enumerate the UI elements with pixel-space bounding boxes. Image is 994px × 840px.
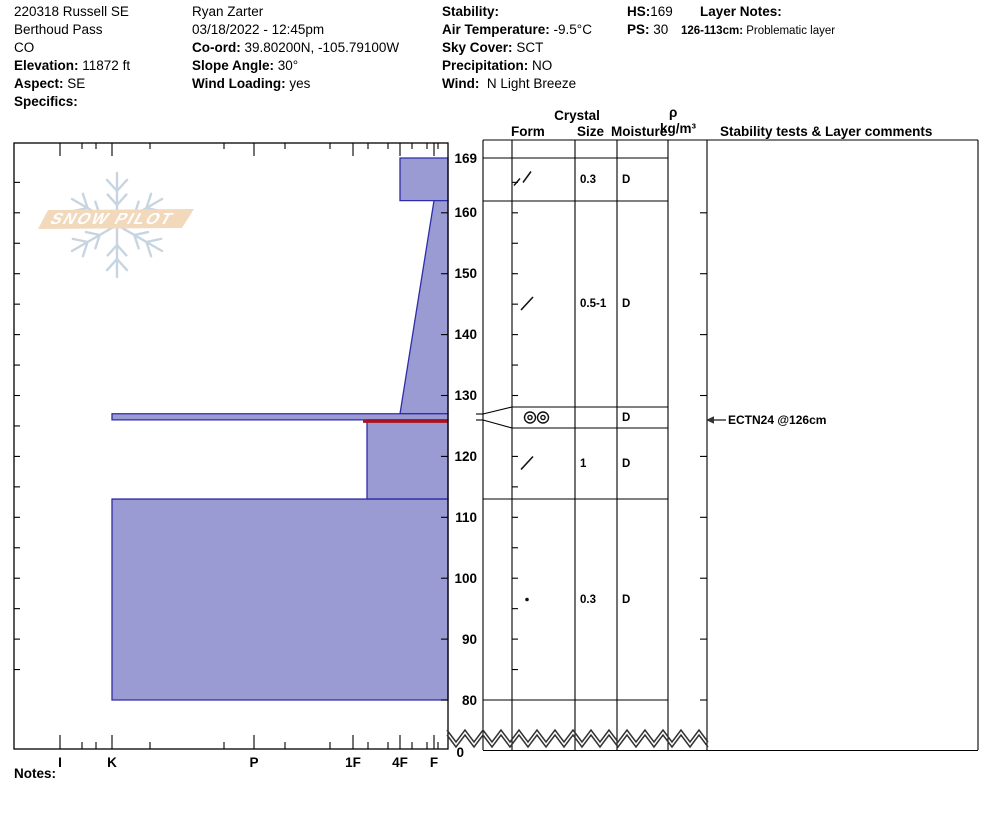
grain-form-rounded-grains-icon — [525, 598, 529, 602]
wind-loading-value: yes — [289, 76, 310, 91]
layer-notes-label: Layer Notes: — [700, 4, 782, 19]
slope-angle-label: Slope Angle: — [192, 58, 274, 73]
moisture-4: D — [622, 593, 630, 607]
moisture-header: Moisture — [611, 124, 667, 139]
grain-form-clustered-rounds-icon — [525, 412, 549, 423]
layer-note-text: Problematic layer — [746, 25, 835, 37]
grain-size-0: 0.3 — [580, 173, 596, 187]
pit-state: CO — [14, 39, 34, 57]
snow-layer-4 — [112, 499, 448, 700]
ps-line: PS: 30 — [627, 21, 668, 39]
layer-note-range: 126-113cm: — [681, 25, 743, 37]
wind-loading-label: Wind Loading: — [192, 76, 286, 91]
hardness-label-F: F — [419, 755, 449, 770]
hs-line: HS:169 — [627, 3, 673, 21]
layer-note-line: 126-113cm: Problematic layer — [681, 24, 835, 38]
hs-label: HS: — [627, 4, 650, 19]
depth-label-160: 160 — [437, 205, 477, 220]
hardness-label-4F: 4F — [385, 755, 415, 770]
depth-label-90: 90 — [437, 632, 477, 647]
depth-label-110: 110 — [437, 510, 477, 525]
depth-label-169: 169 — [437, 151, 477, 166]
elevation-value: 11872 ft — [82, 58, 130, 73]
size-header: Size — [577, 124, 604, 139]
slope-angle-line: Slope Angle: 30° — [192, 57, 298, 75]
observation-datetime: 03/18/2022 - 12:45pm — [192, 21, 324, 39]
stability-line: Stability: — [442, 3, 499, 21]
form-header: Form — [511, 124, 545, 139]
moisture-1: D — [622, 297, 630, 311]
stability-tests-header: Stability tests & Layer comments — [720, 124, 932, 139]
precip-label: Precipitation: — [442, 58, 528, 73]
aspect-label: Aspect: — [14, 76, 64, 91]
moisture-0: D — [622, 173, 630, 187]
elevation-line: Elevation: 11872 ft — [14, 57, 130, 75]
precip-value: NO — [532, 58, 552, 73]
hs-value: 169 — [650, 4, 673, 19]
ps-label: PS: — [627, 22, 650, 37]
pit-area: Berthoud Pass — [14, 21, 103, 39]
grain-form-decomposing-fragments-icon — [521, 457, 533, 470]
coord-label: Co-ord: — [192, 40, 241, 55]
coord-line: Co-ord: 39.80200N, -105.79100W — [192, 39, 399, 57]
specifics-line: Specifics: — [14, 93, 78, 111]
air-temp-value: -9.5°C — [554, 22, 592, 37]
moisture-2: D — [622, 411, 630, 425]
layer-notes-heading: Layer Notes: — [700, 3, 782, 21]
density-units-header: kg/m³ — [660, 121, 696, 136]
aspect-line: Aspect: SE — [14, 75, 85, 93]
grain-form-decomposing-fragments-pair-icon — [514, 172, 531, 186]
air-temp-line: Air Temperature: -9.5°C — [442, 21, 592, 39]
pit-name: 220318 Russell SE — [14, 3, 129, 21]
ps-value: 30 — [653, 22, 668, 37]
hardness-label-I: I — [45, 755, 75, 770]
hardness-label-K: K — [97, 755, 127, 770]
depth-label-120: 120 — [437, 449, 477, 464]
sky-cover-value: SCT — [516, 40, 543, 55]
precip-line: Precipitation: NO — [442, 57, 552, 75]
depth-label-100: 100 — [437, 571, 477, 586]
coord-value: 39.80200N, -105.79100W — [245, 40, 400, 55]
hardness-label-P: P — [239, 755, 269, 770]
wind-label: Wind: — [442, 76, 479, 91]
stability-label: Stability: — [442, 4, 499, 19]
grain-size-4: 0.3 — [580, 593, 596, 607]
grain-size-3: 1 — [580, 457, 586, 471]
observer-name: Ryan Zarter — [192, 3, 263, 21]
density-symbol-header: ρ — [669, 105, 677, 120]
hardness-label-1F: 1F — [338, 755, 368, 770]
snowpilot-logo-wordmark: SNOW PILOT — [36, 210, 188, 229]
depth-label-140: 140 — [437, 327, 477, 342]
wind-loading-line: Wind Loading: yes — [192, 75, 310, 93]
depth-label-150: 150 — [437, 266, 477, 281]
sky-cover-line: Sky Cover: SCT — [442, 39, 543, 57]
slope-angle-value: 30° — [278, 58, 298, 73]
snow-layer-1 — [400, 201, 448, 414]
grain-form-decomposing-fragments-icon — [521, 297, 533, 310]
wind-line: Wind: N Light Breeze — [442, 75, 576, 93]
elevation-label: Elevation: — [14, 58, 79, 73]
crystal-header: Crystal — [550, 108, 604, 123]
aspect-value: SE — [67, 76, 85, 91]
wind-value: N Light Breeze — [487, 76, 576, 91]
sky-cover-label: Sky Cover: — [442, 40, 513, 55]
stability-test-label: ECTN24 @126cm — [728, 413, 826, 427]
air-temp-label: Air Temperature: — [442, 22, 550, 37]
moisture-3: D — [622, 457, 630, 471]
snow-layer-3 — [367, 420, 448, 499]
depth-label-130: 130 — [437, 388, 477, 403]
snowpilot-profile-report: 220318 Russell SE Berthoud Pass CO Eleva… — [0, 0, 994, 840]
snow-layer-2 — [112, 414, 448, 420]
grain-size-1: 0.5-1 — [580, 297, 606, 311]
depth-label-80: 80 — [437, 693, 477, 708]
specifics-label: Specifics: — [14, 94, 78, 109]
